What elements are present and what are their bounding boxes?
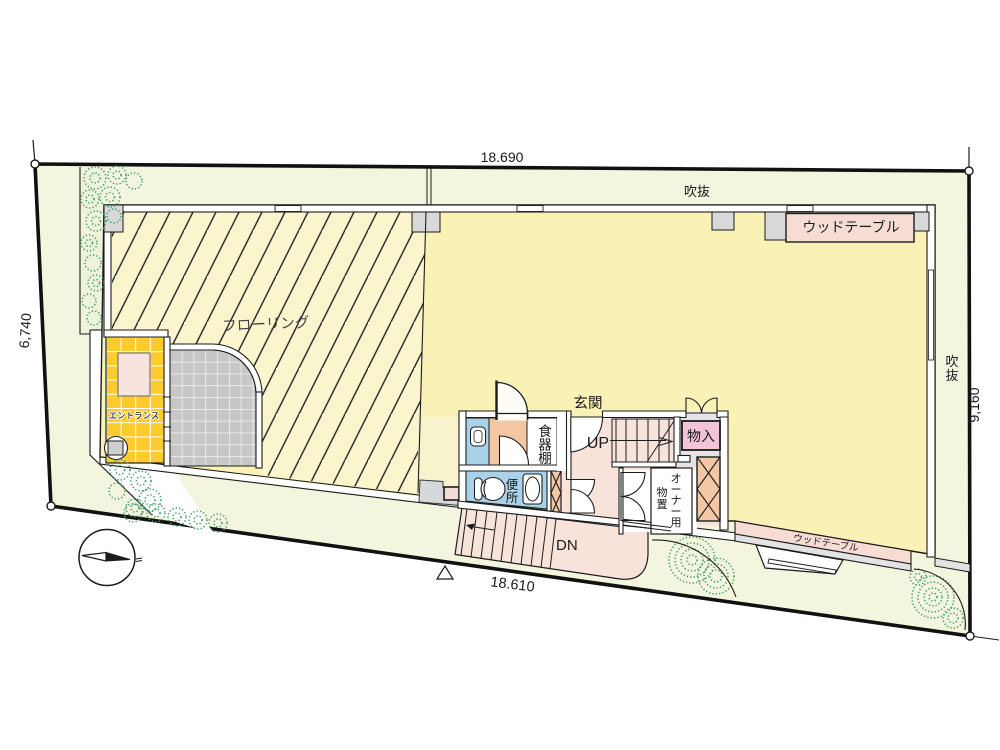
svg-text:棚: 棚 <box>538 451 552 466</box>
svg-text:用: 用 <box>671 517 682 529</box>
svg-text:抜: 抜 <box>945 368 958 383</box>
svg-text:玄関: 玄関 <box>574 395 603 412</box>
svg-text:便: 便 <box>506 478 519 492</box>
svg-text:物: 物 <box>657 485 668 499</box>
svg-text:DN: DN <box>556 537 578 554</box>
svg-text:物入: 物入 <box>687 428 715 444</box>
svg-text:9,160: 9,160 <box>966 387 982 422</box>
svg-text:6,740: 6,740 <box>16 312 34 348</box>
svg-text:エントランス: エントランス <box>109 411 160 421</box>
svg-text:所: 所 <box>506 491 519 505</box>
svg-text:置: 置 <box>657 498 668 511</box>
svg-text:18.690: 18.690 <box>481 149 524 165</box>
svg-text:吹抜: 吹抜 <box>684 184 710 199</box>
svg-text:吹: 吹 <box>945 354 958 369</box>
svg-text:ウッドテーブル: ウッドテーブル <box>802 219 899 235</box>
svg-text:UP: UP <box>587 435 609 452</box>
